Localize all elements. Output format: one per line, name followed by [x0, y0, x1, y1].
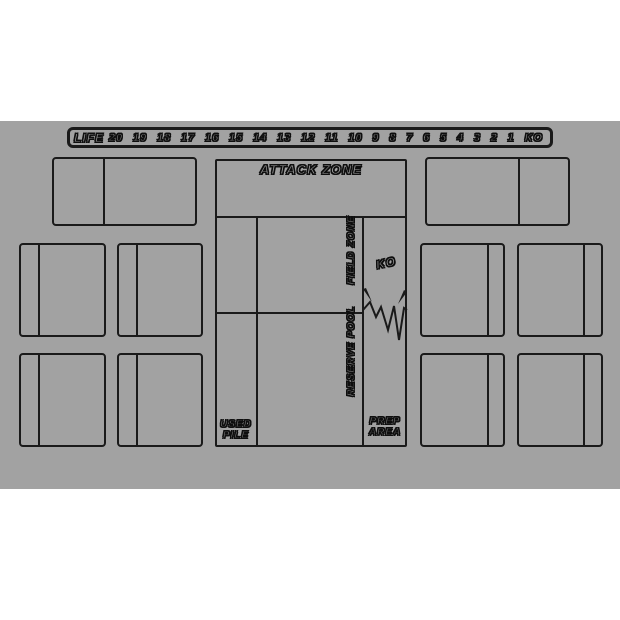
life-value: KO: [525, 132, 544, 144]
prep-area-line2: AREA: [369, 427, 401, 438]
ko-burst-tear-icon: [358, 281, 412, 347]
life-value: 10: [348, 132, 362, 144]
zone-tab-strip: [583, 354, 585, 446]
used-pile-line2: PILE: [223, 430, 249, 441]
prep-area-line1: PREP: [369, 416, 400, 427]
card-zone-left-row1-box2: [117, 243, 203, 337]
card-zone-top-left-pair: [52, 157, 197, 226]
card-zone-left-row1-box1: [19, 243, 106, 337]
card-zone-left-row2-box2: [117, 353, 203, 447]
zone-tab-strip: [38, 354, 40, 446]
used-pile-column-divider: [256, 216, 258, 447]
life-value: 15: [229, 132, 243, 144]
card-zone-right-row1-box2: [517, 243, 603, 337]
zone-divider: [103, 158, 105, 225]
used-pile-label: USED PILE: [216, 419, 256, 441]
life-value: 2: [491, 132, 498, 144]
life-value: 19: [133, 132, 147, 144]
card-zone-right-row2-box1: [420, 353, 505, 447]
life-value: 3: [474, 132, 481, 144]
attack-zone-divider: [215, 216, 407, 218]
life-value: 5: [440, 132, 447, 144]
prep-area-label: PREP AREA: [364, 416, 406, 438]
used-pile-line1: USED: [220, 419, 252, 430]
card-zone-left-row2-box1: [19, 353, 106, 447]
life-value: 13: [277, 132, 291, 144]
life-value: 18: [157, 132, 171, 144]
life-counter-track: LIFE 2019181716151413121110987654321KO: [67, 127, 553, 148]
zone-tab-strip: [136, 354, 138, 446]
life-value: 14: [253, 132, 267, 144]
life-value: 1: [508, 132, 515, 144]
zone-tab-strip: [487, 354, 489, 446]
zone-tab-strip: [583, 244, 585, 336]
life-value: 9: [372, 132, 379, 144]
life-values: 2019181716151413121110987654321KO: [104, 132, 550, 144]
life-value: 12: [301, 132, 315, 144]
zone-tab-strip: [487, 244, 489, 336]
card-zone-right-row2-box2: [517, 353, 603, 447]
reserve-pool-divider: [215, 312, 363, 314]
life-value: 11: [325, 132, 338, 144]
card-zone-right-row1-box1: [420, 243, 505, 337]
life-label: LIFE: [70, 131, 104, 145]
life-value: 16: [205, 132, 219, 144]
attack-zone-label: ATTACK ZONE: [215, 162, 407, 177]
life-value: 20: [109, 132, 123, 144]
playmat-image: LIFE 2019181716151413121110987654321KO A: [0, 0, 620, 620]
card-zone-top-right-pair: [425, 157, 570, 226]
life-value: 17: [181, 132, 195, 144]
life-value: 4: [457, 132, 464, 144]
zone-divider: [518, 158, 520, 225]
life-value: 8: [389, 132, 396, 144]
life-value: 6: [423, 132, 430, 144]
zone-tab-strip: [136, 244, 138, 336]
zone-tab-strip: [38, 244, 40, 336]
life-value: 7: [406, 132, 413, 144]
